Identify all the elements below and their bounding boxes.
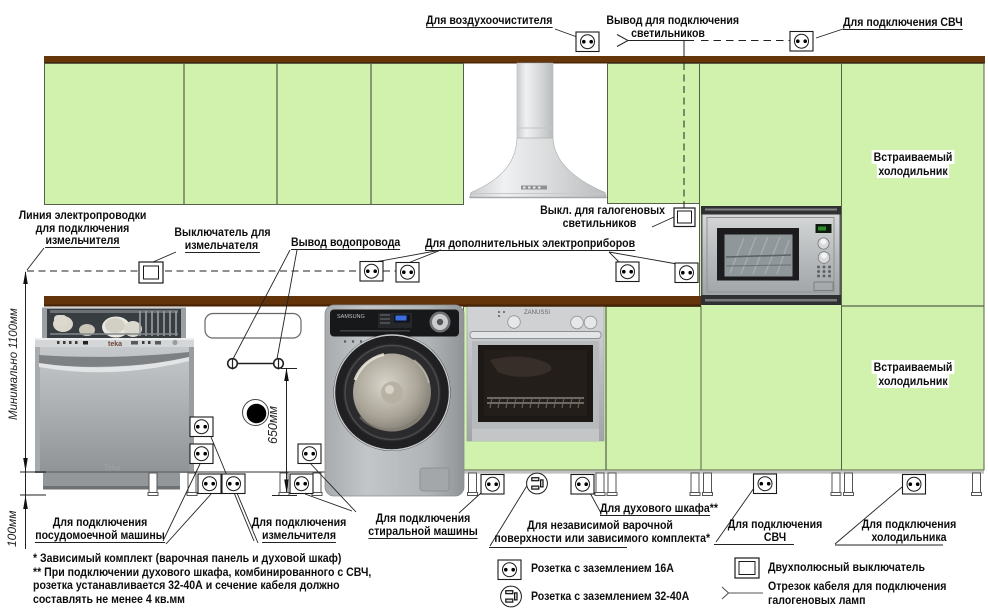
svg-text:Teka: Teka (104, 463, 121, 472)
svg-text:teka: teka (108, 341, 122, 348)
svg-text:SAMSUNG: SAMSUNG (337, 314, 365, 320)
svg-text:ZANUSSI: ZANUSSI (524, 310, 550, 316)
